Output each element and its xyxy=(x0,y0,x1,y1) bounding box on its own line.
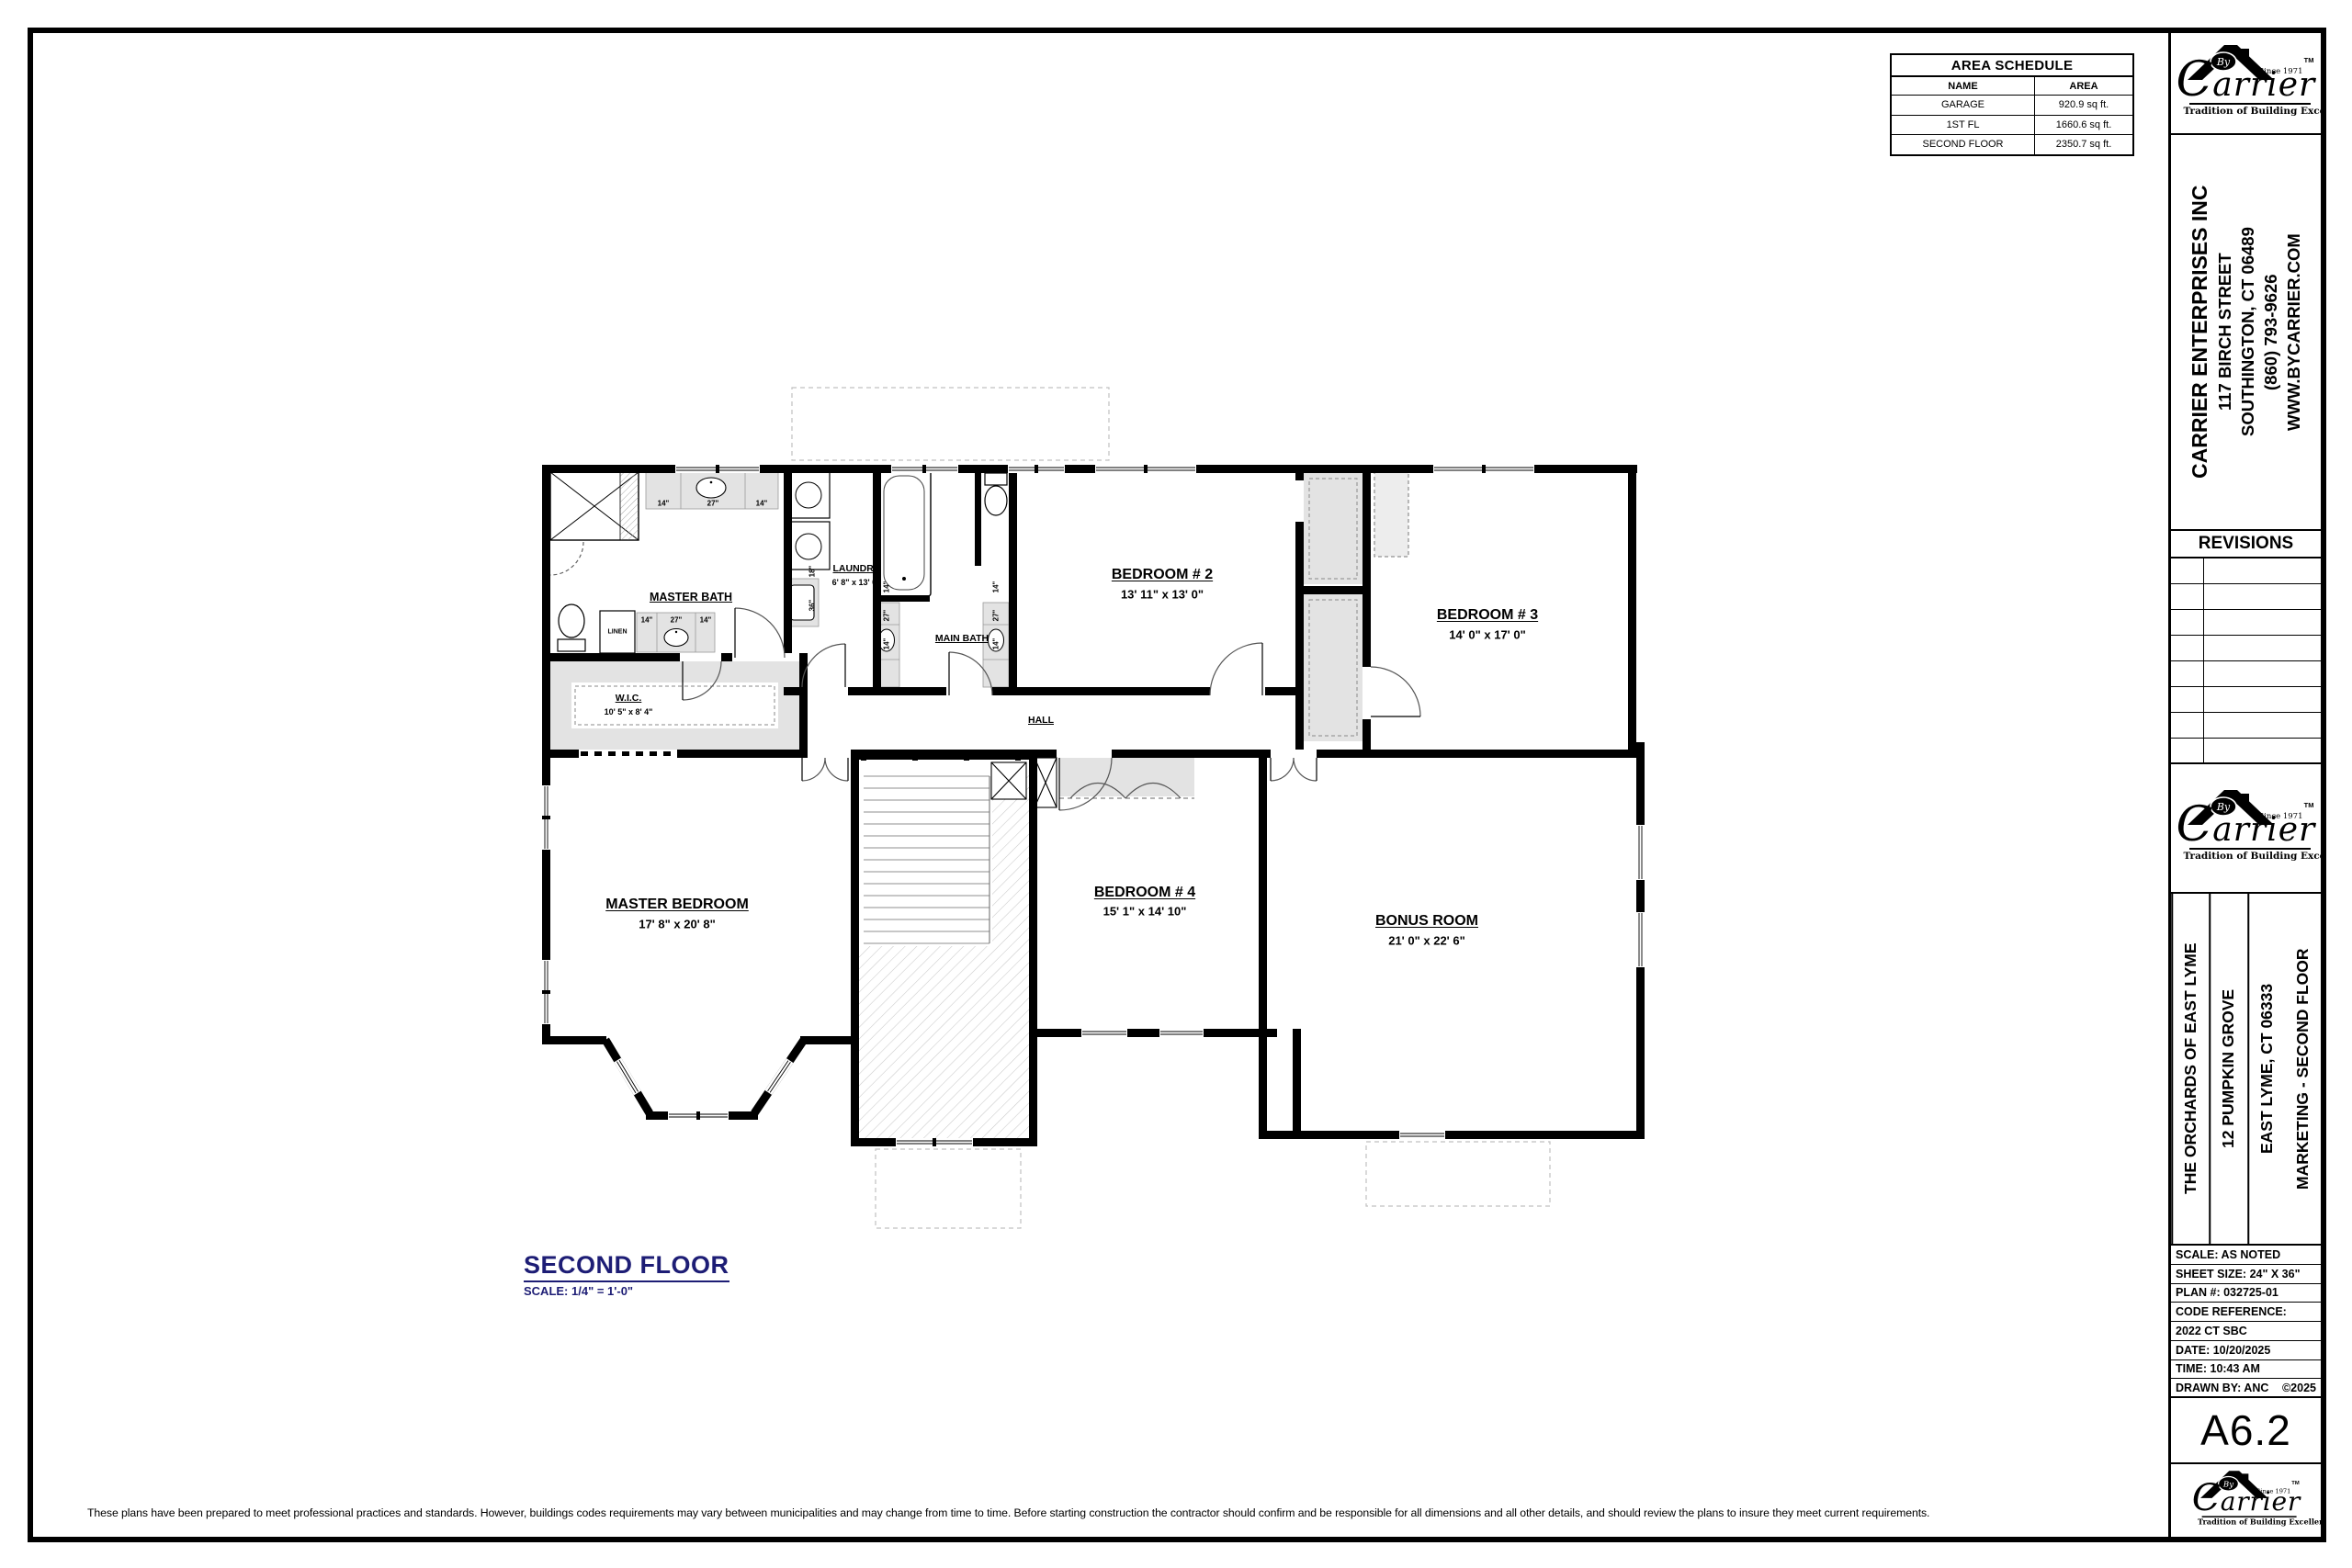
dryer xyxy=(786,522,830,570)
logo-tagline: Tradition of Building Excellence xyxy=(2197,1517,2300,1526)
logo-since-text: Since 1971 xyxy=(2256,1487,2290,1495)
room-label-laundry: LAUNDRY xyxy=(833,563,880,574)
company-website: WWW.BYCARRIER.COM xyxy=(2284,142,2304,522)
vanity-dim-14: 14" xyxy=(641,616,653,625)
plan-sheet: { "page": {"background": "#ffffff", "acc… xyxy=(0,0,2352,1568)
company-name: CARRIER ENTERPRISES INC xyxy=(2188,142,2212,522)
logo-wordmark: Carrier xyxy=(2191,1476,2300,1519)
logo-initial: C xyxy=(2191,1476,2220,1519)
info-sheet-size: SHEET SIZE: 24" X 36" xyxy=(2171,1265,2321,1284)
toilet xyxy=(985,486,1007,515)
fixtures xyxy=(550,469,1007,653)
row-name: 1ST FL xyxy=(1892,116,2035,135)
row-area: 2350.7 sq ft. xyxy=(2035,135,2132,154)
logo-rule xyxy=(2189,848,2311,850)
room-dims-laundry: 6' 8" x 13' 0" xyxy=(832,578,881,587)
table-row: GARAGE 920.9 sq ft. xyxy=(1892,96,2132,116)
revision-row xyxy=(2171,584,2321,610)
copyright: ©2025 xyxy=(2282,1382,2316,1394)
disclaimer-text: These plans have been prepared to meet p… xyxy=(87,1506,2017,1519)
project-address: 12 PUMPKIN GROVE xyxy=(2209,894,2246,1244)
washer xyxy=(786,470,830,518)
logo-rule xyxy=(2189,103,2311,105)
bycarrier-logo: By Carrier Since 1971 TM Tradition of Bu… xyxy=(2191,1466,2301,1535)
logo-tm-mark: TM xyxy=(2291,1479,2299,1485)
company-info-block: CARRIER ENTERPRISES INC 117 BIRCH STREET… xyxy=(2171,135,2321,531)
room-label-master-bath: MASTER BATH xyxy=(650,591,732,604)
revision-row xyxy=(2171,610,2321,636)
revision-row xyxy=(2171,739,2321,764)
drawing-title-block: SECOND FLOOR SCALE: 1/4" = 1'-0" xyxy=(524,1251,729,1298)
walls xyxy=(542,465,1645,1146)
room-label-hall: HALL xyxy=(1028,715,1054,726)
room-label-bonus-room: BONUS ROOM xyxy=(1375,913,1478,930)
logo-tagline: Tradition of Building Excellence xyxy=(2184,106,2316,117)
table-row: 1ST FL 1660.6 sq ft. xyxy=(1892,116,2132,136)
room-label-linen: LINEN xyxy=(608,629,628,636)
logo-wordmark: Carrier xyxy=(2177,52,2316,107)
vanity-dim-27: 27" xyxy=(992,610,1001,622)
logo-tm-mark: TM xyxy=(2304,56,2314,64)
area-schedule-header-row: NAME AREA xyxy=(1892,77,2132,96)
vanity-dim-27: 27" xyxy=(671,616,683,625)
room-label-wic: W.I.C. xyxy=(616,693,642,704)
project-city: EAST LYME, CT 06333 xyxy=(2247,894,2285,1244)
logo-tm-mark: TM xyxy=(2304,801,2314,809)
logo-since-text: Since 1971 xyxy=(2258,67,2302,76)
vanity-dim-14: 14" xyxy=(883,581,891,593)
bycarrier-logo: By Carrier Since 1971 TM Tradition of Bu… xyxy=(2177,39,2316,128)
revisions-block: REVISIONS xyxy=(2171,531,2321,764)
info-plan-number: PLAN #: 032725-01 xyxy=(2171,1284,2321,1303)
vanity-dim-14: 14" xyxy=(658,500,670,508)
room-dims-bedroom2: 13' 11" x 13' 0" xyxy=(1121,588,1204,602)
room-label-bedroom2: BEDROOM # 2 xyxy=(1112,567,1213,583)
room-dims-wic: 10' 5" x 8' 4" xyxy=(605,707,653,716)
revision-row xyxy=(2171,687,2321,713)
logo-initial: C xyxy=(2177,797,2213,852)
floor-plan-geometry xyxy=(528,457,1649,1169)
project-sheet-title: MARKETING - SECOND FLOOR xyxy=(2285,894,2321,1244)
stair-open-hatch xyxy=(859,770,1029,1138)
logo-since-text: Since 1971 xyxy=(2258,812,2302,821)
sheet-number: A6.2 xyxy=(2171,1398,2321,1464)
bycarrier-logo: By Carrier Since 1971 TM Tradition of Bu… xyxy=(2177,784,2316,873)
logo-wordmark: Carrier xyxy=(2177,797,2316,852)
revisions-header: REVISIONS xyxy=(2171,531,2321,558)
area-schedule-table: AREA SCHEDULE NAME AREA GARAGE 920.9 sq … xyxy=(1890,53,2134,156)
row-name: GARAGE xyxy=(1892,96,2035,115)
sheet-info-block: SCALE: AS NOTED SHEET SIZE: 24" X 36" PL… xyxy=(2171,1246,2321,1398)
revision-row xyxy=(2171,558,2321,584)
revision-row xyxy=(2171,636,2321,661)
row-area: 920.9 sq ft. xyxy=(2035,96,2132,115)
revision-row xyxy=(2171,713,2321,739)
table-row: SECOND FLOOR 2350.7 sq ft. xyxy=(1892,135,2132,154)
info-scale: SCALE: AS NOTED xyxy=(2171,1246,2321,1265)
drawing-title: SECOND FLOOR xyxy=(524,1251,729,1282)
vanity-dim-27: 27" xyxy=(883,610,891,622)
logo-tagline: Tradition of Building Excellence xyxy=(2184,851,2316,862)
title-block: By Carrier Since 1971 TM Tradition of Bu… xyxy=(2168,33,2321,1537)
info-code: 2022 CT SBC xyxy=(2171,1322,2321,1341)
title-block-logo-bottom: By Carrier Since 1971 TM Tradition of Bu… xyxy=(2171,1464,2321,1537)
logo-initial: C xyxy=(2177,52,2213,107)
company-city: SOUTHINGTON, CT 06489 xyxy=(2238,142,2258,522)
room-dims-bedroom4: 15' 1" x 14' 10" xyxy=(1103,905,1187,919)
info-date: DATE: 10/20/2025 xyxy=(2171,1341,2321,1360)
revision-row xyxy=(2171,661,2321,687)
room-dims-master-bedroom: 17' 8" x 20' 8" xyxy=(639,918,716,931)
sink xyxy=(696,478,726,498)
company-phone: (860) 793-9626 xyxy=(2261,142,2281,522)
info-code-reference: CODE REFERENCE: xyxy=(2171,1303,2321,1322)
floor-plan-drawing: MASTER BATH LINEN W.I.C. 10' 5" x 8' 4" … xyxy=(528,457,1649,1169)
laundry-dim-18: 18" xyxy=(808,566,817,578)
vanity-dim-14: 14" xyxy=(992,638,1001,650)
toilet-tank xyxy=(985,473,1007,485)
vanity-dim-14: 14" xyxy=(700,616,712,625)
title-block-logo-top: By Carrier Since 1971 TM Tradition of Bu… xyxy=(2171,33,2321,135)
room-label-bedroom4: BEDROOM # 4 xyxy=(1094,885,1195,901)
project-info-block: THE ORCHARDS OF EAST LYME 12 PUMPKIN GRO… xyxy=(2171,894,2321,1246)
area-schedule-title: AREA SCHEDULE xyxy=(1892,55,2132,77)
vanity-dim-14: 14" xyxy=(883,638,891,650)
room-dims-bedroom3: 14' 0" x 17' 0" xyxy=(1449,628,1526,642)
room-label-bedroom3: BEDROOM # 3 xyxy=(1437,607,1538,624)
project-development: THE ORCHARDS OF EAST LYME xyxy=(2171,894,2209,1244)
info-drawn-by: DRAWN BY: ANC©2025 xyxy=(2171,1379,2321,1398)
col-header-name: NAME xyxy=(1892,77,2035,95)
row-name: SECOND FLOOR xyxy=(1892,135,2035,154)
laundry-dim-36: 36" xyxy=(808,600,817,612)
vanity-dim-14: 14" xyxy=(756,500,768,508)
vanity-dim-27: 27" xyxy=(707,500,719,508)
room-label-master-bedroom: MASTER BEDROOM xyxy=(605,897,749,913)
title-block-logo-middle: By Carrier Since 1971 TM Tradition of Bu… xyxy=(2171,764,2321,894)
windows xyxy=(542,465,1645,1146)
company-address: 117 BIRCH STREET xyxy=(2215,142,2235,522)
drawing-scale: SCALE: 1/4" = 1'-0" xyxy=(524,1284,729,1298)
col-header-area: AREA xyxy=(2035,77,2132,95)
logo-rule xyxy=(2201,1516,2296,1517)
room-dims-bonus-room: 21' 0" x 22' 6" xyxy=(1388,934,1465,948)
info-time: TIME: 10:43 AM xyxy=(2171,1360,2321,1380)
row-area: 1660.6 sq ft. xyxy=(2035,116,2132,135)
vanity-dim-14: 14" xyxy=(992,581,1001,593)
toilet xyxy=(559,604,584,637)
room-label-main-bath: MAIN BATH xyxy=(935,633,989,644)
